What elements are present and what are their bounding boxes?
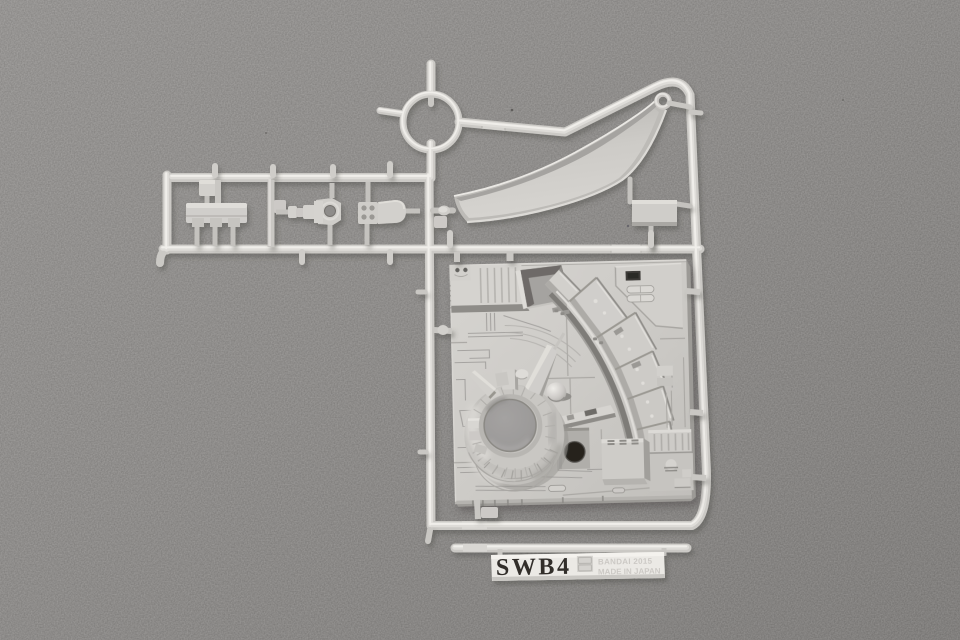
svg-text:BANDAI 2015: BANDAI 2015 (598, 557, 653, 567)
svg-text:MADE IN JAPAN: MADE IN JAPAN (598, 567, 661, 577)
svg-text:SWB4: SWB4 (496, 554, 572, 581)
